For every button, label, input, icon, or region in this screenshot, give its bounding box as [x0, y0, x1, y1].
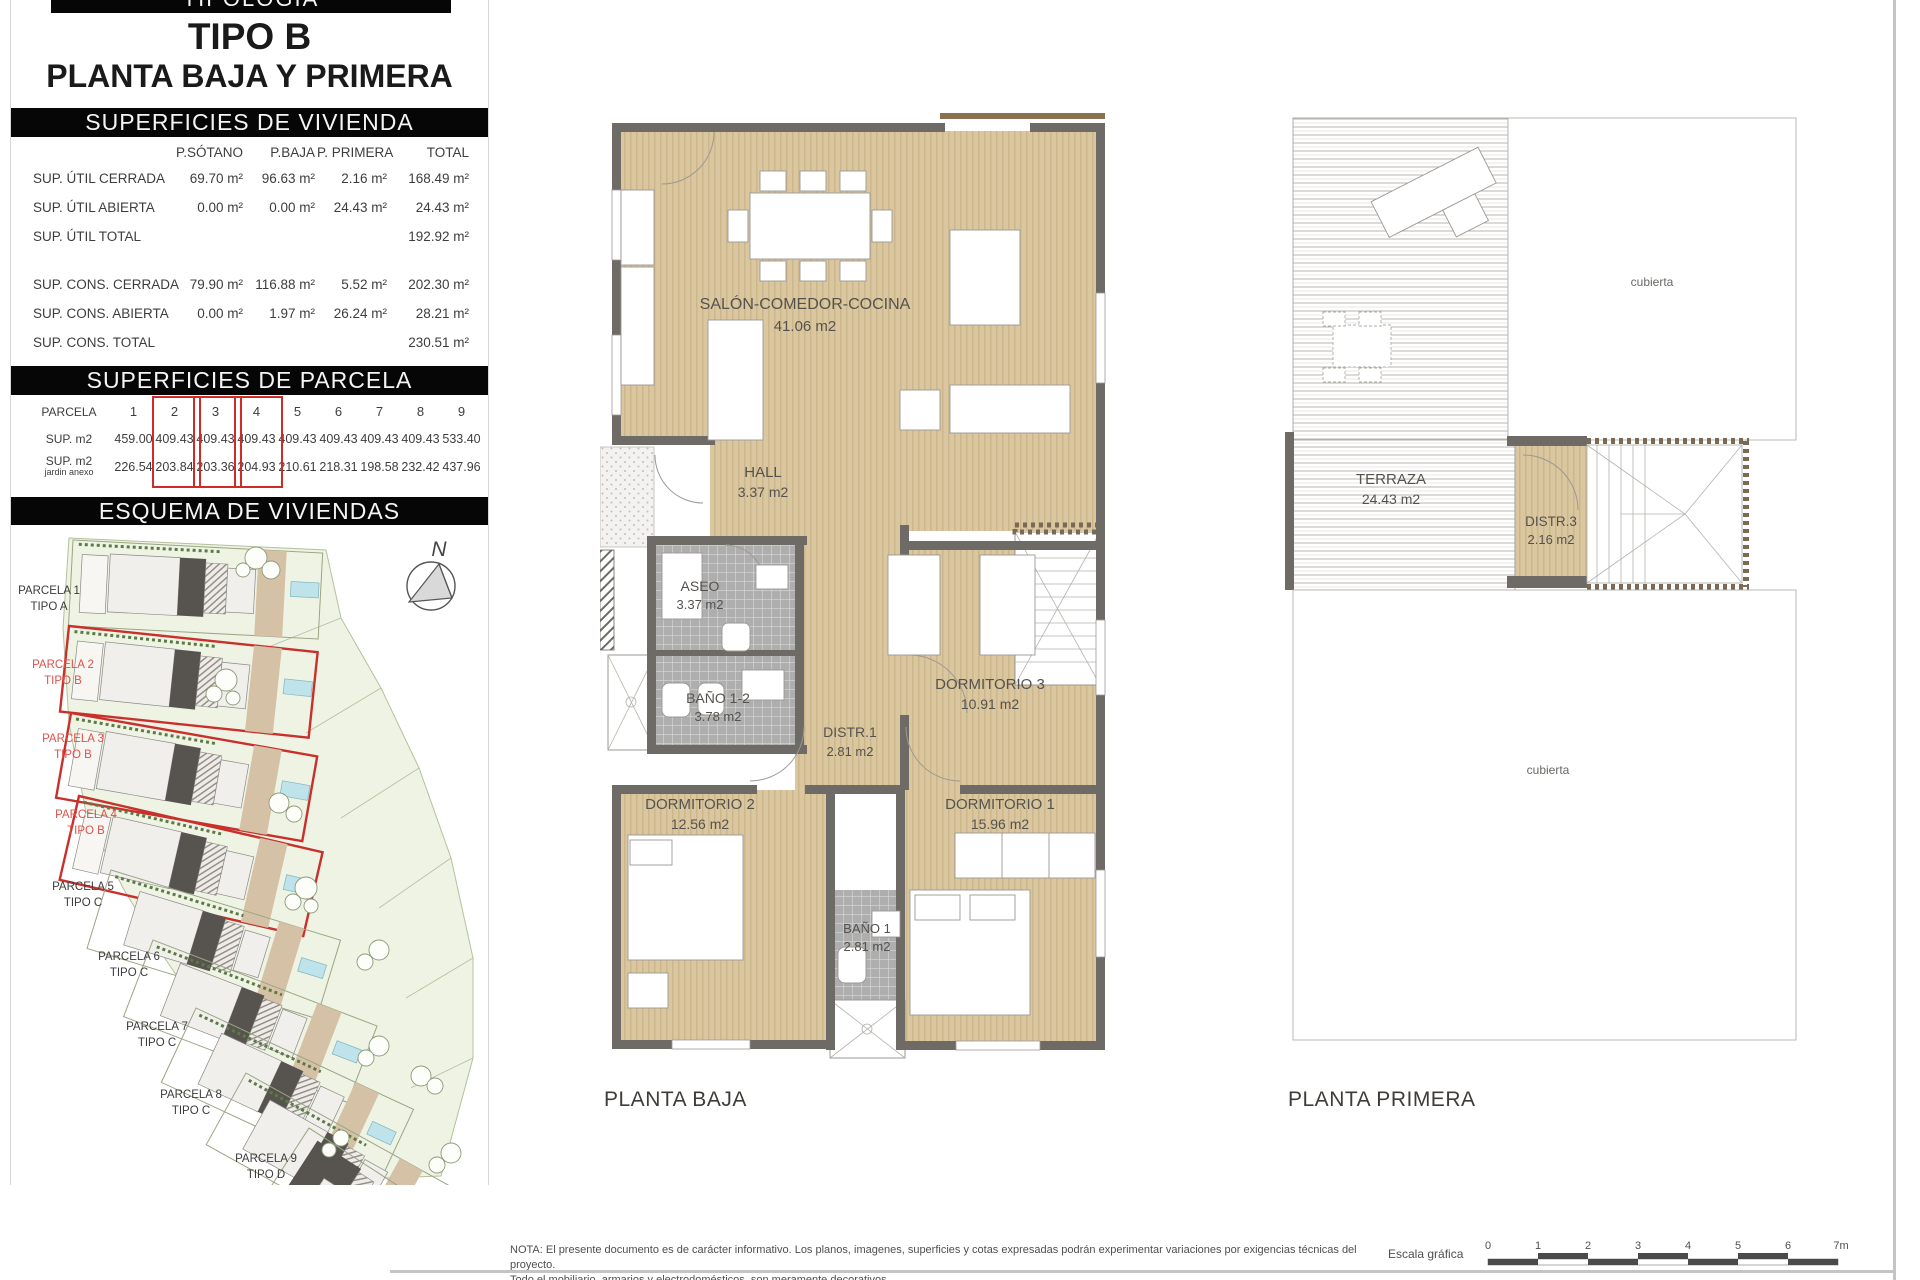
parcel-tipo: TIPO A: [30, 601, 67, 613]
svg-text:1: 1: [1535, 1240, 1541, 1252]
parcel-label: PARCELA 9: [235, 1153, 297, 1165]
esquema-header-bar: ESQUEMA DE VIVIENDAS: [11, 497, 488, 525]
exterior-hatch: [600, 550, 614, 650]
svg-text:0: 0: [1485, 1240, 1491, 1252]
tipologia-header-bar: TIPOLOGÍA: [51, 0, 451, 13]
upper-deck: [1293, 118, 1510, 440]
room-label: HALL: [744, 464, 782, 481]
room-label: ASEO: [681, 578, 720, 594]
bed-dorm3: [888, 555, 940, 655]
scale-segments: [1488, 1253, 1838, 1265]
north-arrow: N: [407, 538, 455, 610]
vivienda-col-headers: P.SÓTANO P.BAJA P. PRIMERA TOTAL: [25, 140, 485, 164]
room-area: 3.37 m2: [738, 484, 789, 500]
room-area: 10.91 m2: [961, 696, 1020, 712]
parcel-label: PARCELA 6: [98, 951, 160, 963]
dining-table: [750, 193, 870, 259]
table-row: SUP. ÚTIL TOTAL 192.92 m²: [25, 222, 485, 251]
room-area: 2.81 m2: [827, 744, 874, 759]
planta-primera-plan: cubierta TERRAZA 24.43 m2 DISTR.3 2.16 m…: [1285, 110, 1800, 1050]
room-area: 2.81 m2: [844, 939, 891, 954]
nota-line-2: Todo el mobiliario, armarios y electrodo…: [510, 1273, 1380, 1280]
col-primera: P. PRIMERA: [317, 145, 389, 160]
stair-roof: [1587, 441, 1749, 587]
room-label: SALÓN-COMEDOR-COCINA: [700, 294, 911, 313]
parcel-label: PARCELA 8: [160, 1089, 222, 1101]
room-label: DORMITORIO 1: [945, 796, 1055, 813]
table-row: SUP. ÚTIL ABIERTA 0.00 m² 0.00 m² 24.43 …: [25, 193, 485, 222]
room-area: 12.56 m2: [671, 816, 730, 832]
info-panel: TIPOLOGÍA TIPO B PLANTA BAJA Y PRIMERA S…: [10, 0, 489, 1185]
planta-primera-caption: PLANTA PRIMERA: [1288, 1088, 1476, 1112]
room-area: 2.16 m2: [1528, 532, 1575, 547]
room-label: DORMITORIO 3: [935, 676, 1045, 693]
parcel-label: PARCELA 5: [52, 881, 114, 893]
table-row: SUP. CONS. CERRADA 79.90 m² 116.88 m² 5.…: [25, 270, 485, 299]
table-row: SUP. CONS. ABIERTA 0.00 m² 1.97 m² 26.24…: [25, 299, 485, 328]
floors-title: PLANTA BAJA Y PRIMERA: [11, 58, 488, 95]
room-label: DISTR.3: [1525, 514, 1577, 529]
drawing-sheet: TIPOLOGÍA TIPO B PLANTA BAJA Y PRIMERA S…: [0, 0, 1920, 1280]
parcel-tipo: TIPO C: [64, 897, 102, 909]
wardrobe-dorm1: [955, 833, 1095, 878]
tipologia-label: TIPOLOGÍA: [51, 0, 451, 12]
sofa: [950, 230, 1020, 325]
cubierta-upper: cubierta: [1508, 118, 1796, 440]
svg-text:7m: 7m: [1833, 1240, 1848, 1252]
room-area: 3.37 m2: [677, 597, 724, 612]
vivienda-table: P.SÓTANO P.BAJA P. PRIMERA TOTAL SUP. ÚT…: [25, 140, 485, 357]
nota-line-1: NOTA: El presente documento es de caráct…: [510, 1243, 1380, 1273]
room-label: DISTR.1: [823, 724, 877, 740]
parcel-tipo: TIPO D: [247, 1169, 285, 1181]
svg-text:4: 4: [1685, 1240, 1691, 1252]
parcela-header-bar: SUPERFICIES DE PARCELA: [11, 366, 488, 395]
col-baja: P.BAJA: [245, 145, 317, 160]
cubierta-lower: cubierta: [1293, 590, 1796, 1040]
entry-porch: [600, 447, 654, 547]
parcel-label: PARCELA 4: [55, 809, 117, 821]
svg-text:6: 6: [1785, 1240, 1791, 1252]
parcel-tipo: TIPO C: [172, 1105, 210, 1117]
parcel-label: PARCELA 2: [32, 659, 94, 671]
shower-bano1: [830, 1000, 905, 1058]
col-sotano: P.SÓTANO: [165, 145, 245, 160]
parcel-tipo: TIPO B: [54, 749, 92, 761]
room-area: 15.96 m2: [971, 816, 1030, 832]
room-area: 41.06 m2: [774, 318, 837, 335]
svg-text:2: 2: [1585, 1240, 1591, 1252]
kitchen-island: [708, 320, 763, 440]
room-label: DORMITORIO 2: [645, 796, 755, 813]
distr3-room: DISTR.3 2.16 m2: [1507, 436, 1587, 588]
kitchen-counter: [621, 190, 654, 265]
scale-bar: 0 1 2 3 4 5 6 7m: [1478, 1238, 1890, 1270]
table-row: SUP. CONS. TOTAL 230.51 m²: [25, 328, 485, 357]
parcel-tipo: TIPO C: [138, 1037, 176, 1049]
planta-baja-caption: PLANTA BAJA: [604, 1088, 747, 1112]
parcel-tipo: TIPO B: [67, 825, 105, 837]
parcel-label: PARCELA 7: [126, 1021, 188, 1033]
parcel-label: PARCELA 1: [18, 585, 80, 597]
vivienda-header-bar: SUPERFICIES DE VIVIENDA: [11, 108, 488, 137]
parcel-tipo: TIPO B: [44, 675, 82, 687]
svg-text:3: 3: [1635, 1240, 1641, 1252]
scale-ticks: 0 1 2 3 4 5 6 7m: [1485, 1240, 1849, 1252]
type-title: TIPO B: [11, 16, 488, 58]
page-edge-bottom: [390, 1270, 1896, 1273]
room-label: TERRAZA: [1356, 471, 1426, 488]
cubierta-label: cubierta: [1631, 275, 1674, 289]
terraza: TERRAZA 24.43 m2: [1285, 432, 1515, 590]
room-area: 3.78 m2: [695, 709, 742, 724]
parcel-label: PARCELA 3: [42, 733, 104, 745]
col-total: TOTAL: [389, 145, 471, 160]
page-edge-right: [1893, 0, 1896, 1280]
planta-baja-plan: SALÓN-COMEDOR-COCINA 41.06 m2 HALL 3.37 …: [600, 95, 1120, 1070]
svg-text:5: 5: [1735, 1240, 1741, 1252]
scale-label: Escala gráfica: [1388, 1247, 1463, 1261]
cubierta-label: cubierta: [1527, 763, 1570, 777]
highlight-parcela-4: [234, 396, 283, 488]
room-area: 24.43 m2: [1362, 491, 1421, 507]
north-letter: N: [431, 538, 447, 561]
room-label: BAÑO 1-2: [686, 690, 750, 706]
nota-text: NOTA: El presente documento es de caráct…: [510, 1243, 1380, 1280]
room-label: BAÑO 1: [843, 921, 891, 936]
table-row: SUP. ÚTIL CERRADA 69.70 m² 96.63 m² 2.16…: [25, 164, 485, 193]
site-plan: N PARCELA 1 TIPO A PARCELA 2 TIPO B PARC…: [11, 528, 488, 1185]
parcel-tipo: TIPO C: [110, 967, 148, 979]
